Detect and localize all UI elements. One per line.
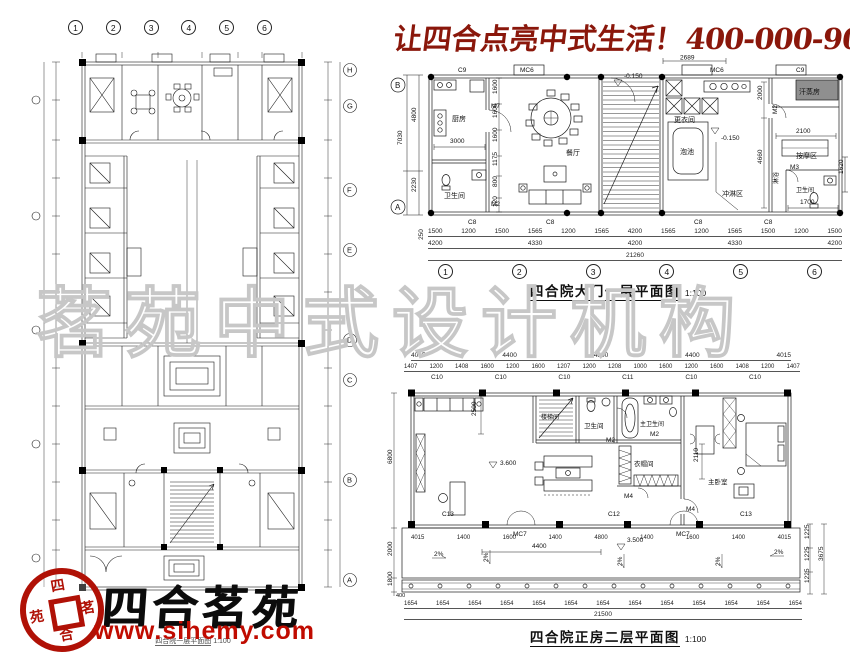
dim: 120 bbox=[492, 196, 499, 207]
window-label: C12 bbox=[608, 511, 620, 518]
dim-value: 5 bbox=[219, 20, 234, 35]
main-plan-title: 四合院正房二层平面图1:100 bbox=[386, 626, 850, 647]
dim: 1700 bbox=[800, 199, 815, 206]
grid-letter: H bbox=[347, 66, 352, 75]
room-label: 淋浴 bbox=[772, 172, 780, 184]
seal-char: 四 bbox=[49, 574, 66, 596]
main-house-plan: 40154400480044004015 1407120014081600120… bbox=[386, 352, 850, 656]
dim-value: 1654 bbox=[532, 600, 545, 608]
window-label: C8 bbox=[694, 219, 703, 226]
dim-value: 1654 bbox=[404, 600, 417, 608]
dim-value: 1654 bbox=[660, 600, 673, 608]
dim: 7030 bbox=[397, 130, 404, 145]
dim-value: 2 bbox=[106, 20, 121, 35]
level: -0.150 bbox=[721, 135, 740, 142]
window-label: C9 bbox=[796, 67, 805, 74]
room-label: 主卫生间 bbox=[640, 420, 664, 428]
dim-value: C10 bbox=[749, 374, 761, 382]
dim: 1175 bbox=[492, 152, 499, 166]
slope: 2% bbox=[774, 549, 784, 556]
dim-value: 6 bbox=[807, 264, 822, 279]
dim-value: 4015 bbox=[777, 352, 791, 360]
dim-value: 1654 bbox=[724, 600, 737, 608]
dim: 2230 bbox=[411, 177, 418, 192]
room-label: 冲淋区 bbox=[722, 189, 743, 198]
dim-value: 1500 bbox=[761, 228, 775, 236]
dim-value: 3 bbox=[144, 20, 159, 35]
dim: 3675 bbox=[818, 546, 825, 561]
level: 3.600 bbox=[500, 460, 517, 467]
dim-value: 1654 bbox=[596, 600, 609, 608]
grid-letter: G bbox=[347, 102, 353, 111]
main-bottom-units: 1654165416541654165416541654165416541654… bbox=[404, 600, 802, 609]
dim: 4660 bbox=[757, 149, 764, 164]
main-terrace-dims: 401514001600140048001400160014004015 bbox=[411, 534, 791, 542]
dim-value: 1 bbox=[68, 20, 83, 35]
dim: 250 bbox=[418, 229, 425, 240]
dim-value: 1654 bbox=[757, 600, 770, 608]
dim: 2500 bbox=[471, 401, 478, 416]
window-label: C8 bbox=[764, 219, 773, 226]
dim-value: 1565 bbox=[594, 228, 608, 236]
phone-number: 400-000-9075 bbox=[684, 22, 850, 56]
window-label: C8 bbox=[468, 219, 477, 226]
dim-value: 1200 bbox=[461, 228, 475, 236]
seal-char: 茗 bbox=[79, 596, 96, 618]
dim: 21500 bbox=[594, 611, 612, 619]
door-label: M4 bbox=[624, 493, 633, 500]
dim-value: 4200 bbox=[628, 228, 642, 236]
gate-dim-row-2: 42004330420043304200 bbox=[428, 240, 842, 249]
dim-value: 1500 bbox=[827, 228, 841, 236]
door-label: M4 bbox=[686, 506, 695, 513]
dim-value: 1400 bbox=[640, 534, 653, 542]
grid-letter: E bbox=[347, 246, 352, 255]
dim: 1225 bbox=[804, 568, 811, 583]
room-label: 按摩区 bbox=[796, 151, 817, 160]
dim-value: 4200 bbox=[428, 240, 442, 248]
main-bottom-total: 21500 bbox=[404, 611, 802, 620]
grid-letter: B bbox=[347, 476, 352, 485]
dim-value: 4800 bbox=[594, 534, 607, 542]
dim: 1600 bbox=[492, 127, 499, 142]
dim-value: 1500 bbox=[495, 228, 509, 236]
dim-value: 1654 bbox=[789, 600, 802, 608]
dim: 3000 bbox=[450, 138, 465, 145]
gate-dim-total: 21260 bbox=[428, 252, 842, 261]
main-plan-drawing: 2500 楼梯间 卫生间 M2 主卫生间 M2 衣帽间 M4 3.600 主卧室… bbox=[386, 384, 850, 598]
main-window-labels: C10C10C10C11C10C10 bbox=[431, 374, 761, 382]
window-label: C13 bbox=[442, 511, 454, 518]
dim-value: 1200 bbox=[694, 228, 708, 236]
dim-value: 1200 bbox=[794, 228, 808, 236]
dim-value: C10 bbox=[558, 374, 570, 382]
door-label: M3 bbox=[790, 164, 799, 171]
dim-value: 4 bbox=[181, 20, 196, 35]
dim-value: 1654 bbox=[628, 600, 641, 608]
room-label: 楼梯间 bbox=[541, 413, 559, 421]
slogan-text: 让四合点亮中式生活！ bbox=[392, 22, 686, 56]
dim-value: 4015 bbox=[411, 534, 424, 542]
room-label: 衣帽间 bbox=[634, 459, 654, 468]
drawing-sheet: 123456 bbox=[0, 0, 850, 660]
room-label: 更衣间 bbox=[674, 115, 695, 124]
dim-value: 1654 bbox=[468, 600, 481, 608]
dim-value: 1565 bbox=[528, 228, 542, 236]
room-label: 餐厅 bbox=[566, 148, 580, 157]
room-label: 卫生间 bbox=[444, 191, 465, 200]
dim-value: 1654 bbox=[436, 600, 449, 608]
dim-value: 1500 bbox=[428, 228, 442, 236]
dim: 2000 bbox=[387, 541, 394, 556]
dim: 6800 bbox=[387, 449, 394, 464]
dim-value: 1600 bbox=[503, 534, 516, 542]
room-label: 卫生间 bbox=[584, 421, 604, 430]
slope: 2% bbox=[483, 552, 490, 562]
dim-value: 1400 bbox=[457, 534, 470, 542]
room-label: 卫生间 bbox=[796, 186, 814, 194]
dim-value: 1600 bbox=[686, 534, 699, 542]
dim: 1800 bbox=[387, 571, 394, 586]
marketing-slogan: 让四合点亮中式生活！400-000-9075 bbox=[391, 16, 850, 58]
dim: 400 bbox=[396, 593, 405, 598]
dim: 1600 bbox=[492, 79, 499, 94]
watermark-text: 茗苑中式设计机构 bbox=[36, 262, 748, 372]
dim: 800 bbox=[492, 176, 499, 187]
dim-value: C10 bbox=[495, 374, 507, 382]
grid-letter: F bbox=[347, 186, 352, 195]
dim-value: C10 bbox=[685, 374, 697, 382]
door-label: M2 bbox=[772, 105, 779, 114]
gate-dim-row-1: 1500120015001565120015654200156512001565… bbox=[428, 228, 842, 237]
grid-letter: B bbox=[395, 81, 400, 90]
dim: 2110 bbox=[693, 448, 700, 462]
dim: 21260 bbox=[626, 252, 644, 260]
dim: 4400 bbox=[532, 543, 547, 550]
dim-value: 1565 bbox=[728, 228, 742, 236]
dim: 1225 bbox=[804, 546, 811, 561]
level: -0.150 bbox=[624, 73, 643, 80]
room-label: 主卧室 bbox=[708, 477, 728, 486]
dim-value: 4015 bbox=[778, 534, 791, 542]
slope: 2% bbox=[715, 556, 722, 566]
grid-letter: A bbox=[347, 576, 352, 585]
brand-website: www.sihemy.com bbox=[94, 617, 315, 646]
window-label: MC6 bbox=[710, 67, 724, 74]
dim: 4800 bbox=[411, 107, 418, 122]
dim-value: 1654 bbox=[692, 600, 705, 608]
slope: 2% bbox=[434, 551, 444, 558]
gate-plan-drawing: B A 7030 4800 2230 厨房 3000 卫生间 M7 M2 餐厅 … bbox=[386, 52, 850, 226]
dim: 1600 bbox=[492, 103, 499, 118]
slope: 2% bbox=[617, 556, 624, 566]
dim-value: 4200 bbox=[628, 240, 642, 248]
dim-value: 1565 bbox=[661, 228, 675, 236]
window-label: MC6 bbox=[520, 67, 534, 74]
dim-value: 1654 bbox=[500, 600, 513, 608]
dim: 1620 bbox=[838, 159, 845, 174]
dim: 2100 bbox=[796, 128, 811, 135]
room-label: 厨房 bbox=[452, 114, 466, 123]
dim: 2000 bbox=[757, 85, 764, 100]
dim-value: C11 bbox=[622, 374, 633, 382]
dim-value: 1407 bbox=[787, 363, 800, 371]
dim: 1225 bbox=[804, 524, 811, 539]
grid-letter: C bbox=[347, 376, 353, 385]
grid-letter: A bbox=[395, 203, 401, 212]
room-label: 汗蒸房 bbox=[799, 87, 820, 96]
door-label: M2 bbox=[650, 431, 659, 438]
dim-value: 4330 bbox=[528, 240, 542, 248]
window-label: C13 bbox=[740, 511, 752, 518]
window-label: C9 bbox=[458, 67, 467, 74]
dim-value: 1654 bbox=[564, 600, 577, 608]
dim-value: 1400 bbox=[548, 534, 561, 542]
seal-char: 苑 bbox=[28, 605, 45, 627]
site-grid-bubbles-top: 123456 bbox=[68, 20, 272, 35]
dim-value: C10 bbox=[431, 374, 443, 382]
dim-value: 1200 bbox=[561, 228, 575, 236]
room-label: 泡池 bbox=[680, 147, 694, 156]
window-label: C8 bbox=[546, 219, 555, 226]
dim-value: 4330 bbox=[728, 240, 742, 248]
dim-value: 6 bbox=[257, 20, 272, 35]
dim-value: 1200 bbox=[761, 363, 774, 371]
dim-value: 4200 bbox=[828, 240, 842, 248]
dim-value: 1400 bbox=[732, 534, 745, 542]
door-label: M2 bbox=[606, 437, 615, 444]
